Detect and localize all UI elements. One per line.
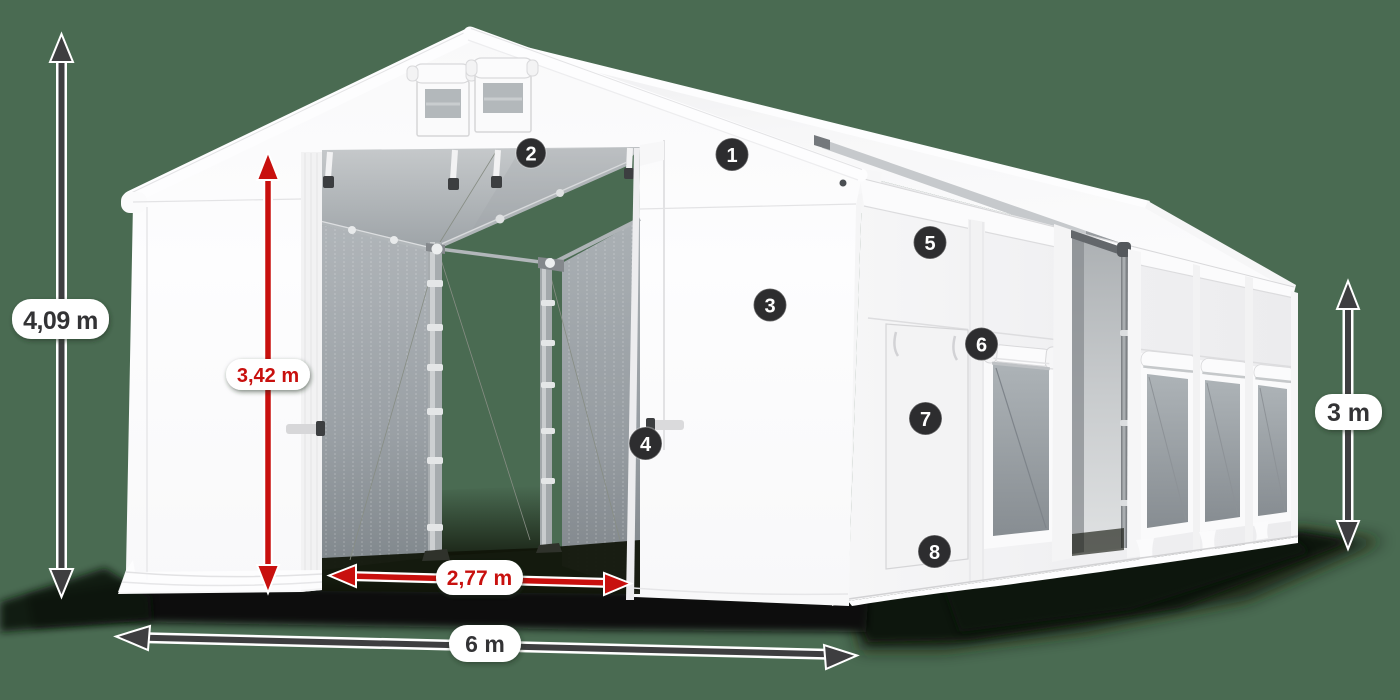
svg-text:4: 4: [640, 434, 652, 456]
svg-text:6 m: 6 m: [465, 631, 505, 657]
svg-text:5: 5: [924, 233, 935, 255]
svg-text:1: 1: [726, 145, 737, 167]
svg-text:2,77 m: 2,77 m: [447, 567, 512, 590]
svg-text:4,09 m: 4,09 m: [23, 307, 98, 335]
svg-text:7: 7: [920, 409, 931, 431]
svg-text:3,42 m: 3,42 m: [237, 365, 299, 387]
svg-text:2: 2: [525, 144, 536, 166]
svg-text:3 m: 3 m: [1327, 399, 1370, 427]
svg-text:8: 8: [929, 542, 940, 564]
svg-text:6: 6: [976, 335, 987, 357]
svg-text:3: 3: [764, 296, 775, 318]
